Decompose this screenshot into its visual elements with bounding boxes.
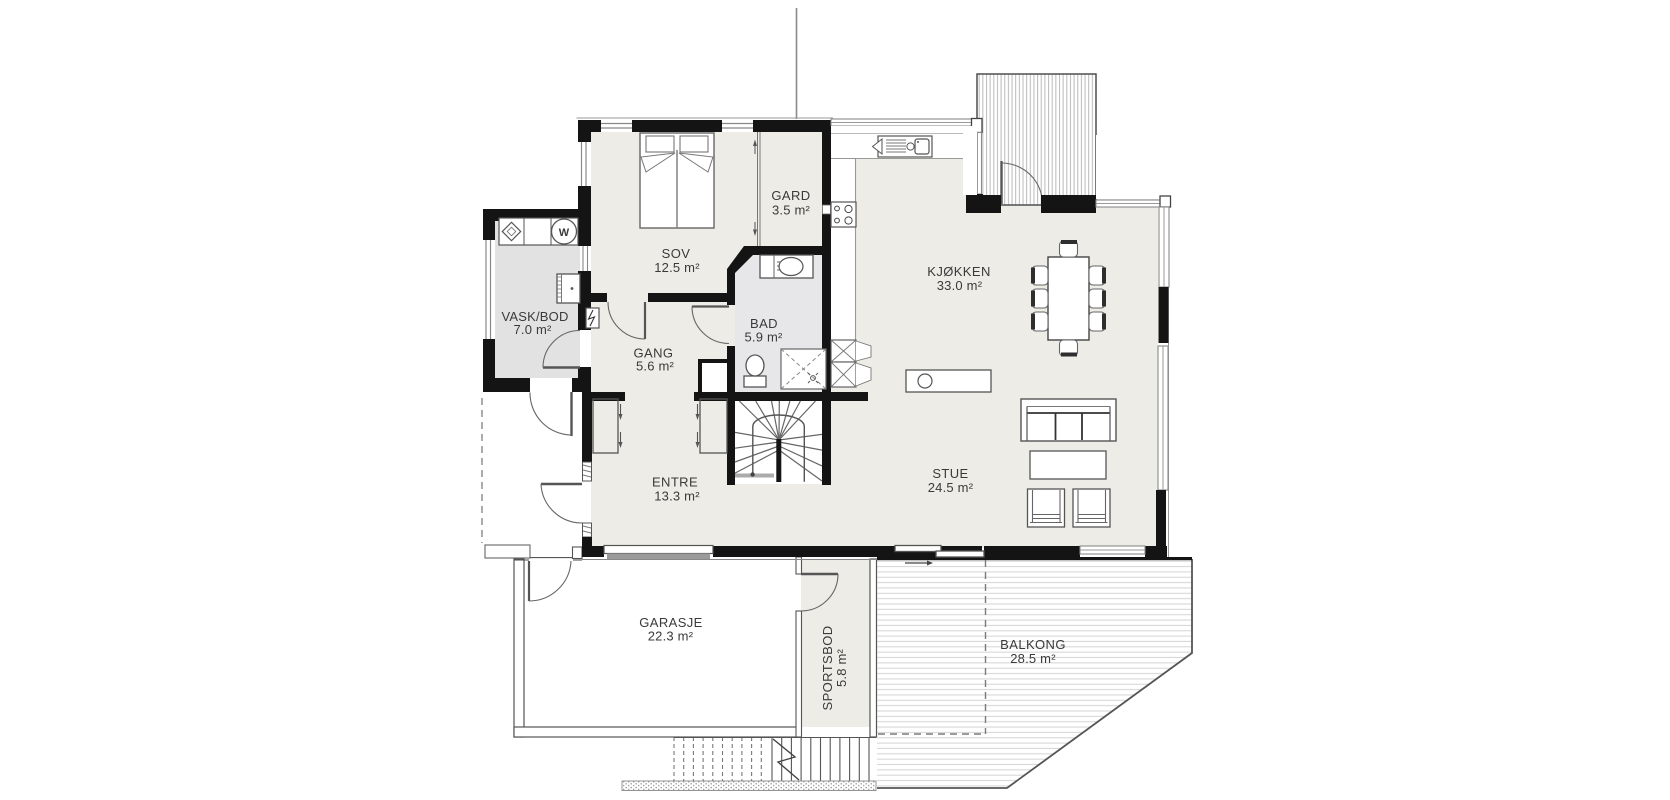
svg-text:SOV: SOV [662,246,691,261]
svg-text:SPORTSBOD: SPORTSBOD [820,626,835,711]
svg-text:5.6 m²: 5.6 m² [636,359,675,374]
svg-text:33.0 m²: 33.0 m² [937,278,983,293]
svg-text:KJØKKEN: KJØKKEN [927,264,990,279]
svg-text:22.3 m²: 22.3 m² [648,629,694,644]
svg-text:STUE: STUE [932,466,968,481]
svg-text:W: W [559,227,570,239]
svg-text:ENTRE: ENTRE [652,475,698,490]
svg-text:5.9 m²: 5.9 m² [744,330,783,345]
svg-text:28.5 m²: 28.5 m² [1010,651,1056,666]
svg-text:24.5 m²: 24.5 m² [928,480,974,495]
svg-text:GARD: GARD [771,188,810,203]
svg-text:BALKONG: BALKONG [1000,637,1066,652]
svg-text:3.5 m²: 3.5 m² [772,203,811,218]
svg-text:5.8 m²: 5.8 m² [834,649,849,688]
svg-text:7.0 m²: 7.0 m² [513,322,552,337]
svg-text:13.3 m²: 13.3 m² [654,489,700,504]
svg-text:12.5 m²: 12.5 m² [654,260,700,275]
